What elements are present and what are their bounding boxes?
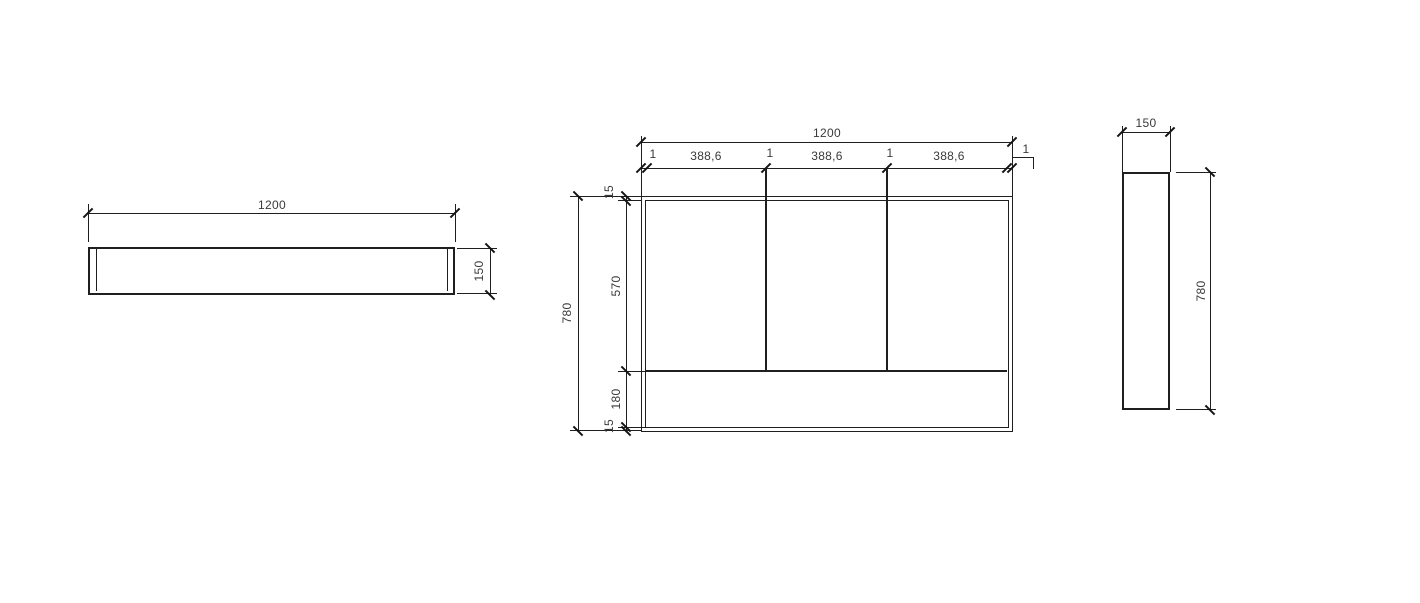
panel-thickness-line xyxy=(96,249,97,291)
dim-label-chain-1: 388,6 xyxy=(690,150,722,162)
top-view-outline xyxy=(88,247,455,295)
dimension-line xyxy=(578,196,579,431)
chain-dimension-line xyxy=(626,196,627,431)
dim-label-top-depth: 150 xyxy=(473,261,485,282)
dimension-line xyxy=(1122,132,1170,133)
dim-label-side-chain-2: 180 xyxy=(610,389,622,410)
dimension-line xyxy=(88,213,455,214)
front-view-outline-inner xyxy=(645,200,1009,428)
dim-label-chain-4: 1 xyxy=(887,147,894,159)
divider-line xyxy=(765,169,767,372)
side-view-outline xyxy=(1122,172,1170,410)
shelf-line xyxy=(646,370,1007,372)
leader-line xyxy=(1013,157,1034,158)
dim-label-top-length: 1200 xyxy=(258,199,286,211)
dimension-line xyxy=(490,248,491,295)
extension-line xyxy=(618,371,645,372)
cad-drawing-canvas: 1200 150 1200 1 388,6 1 xyxy=(0,0,1420,603)
dim-label-side-chain-0: 15 xyxy=(603,185,615,199)
dimension-line xyxy=(1210,172,1211,410)
dim-label-front-height: 780 xyxy=(561,303,573,324)
chain-dimension-line xyxy=(641,168,1012,169)
panel-thickness-line xyxy=(447,249,448,291)
dim-label-chain-2: 1 xyxy=(767,147,774,159)
dim-label-side-chain-3: 15 xyxy=(603,419,615,433)
dim-label-chain-6: 1 xyxy=(1023,143,1030,155)
leader-line xyxy=(1033,157,1034,169)
dim-label-chain-5: 388,6 xyxy=(933,150,965,162)
dim-label-side-height: 780 xyxy=(1195,281,1207,302)
dim-label-chain-0: 1 xyxy=(650,148,657,160)
dimension-line xyxy=(641,142,1012,143)
dim-label-front-width: 1200 xyxy=(813,127,841,139)
divider-line xyxy=(886,169,888,372)
dim-label-side-depth: 150 xyxy=(1136,117,1157,129)
dim-label-chain-3: 388,6 xyxy=(811,150,843,162)
dim-label-side-chain-1: 570 xyxy=(610,276,622,297)
